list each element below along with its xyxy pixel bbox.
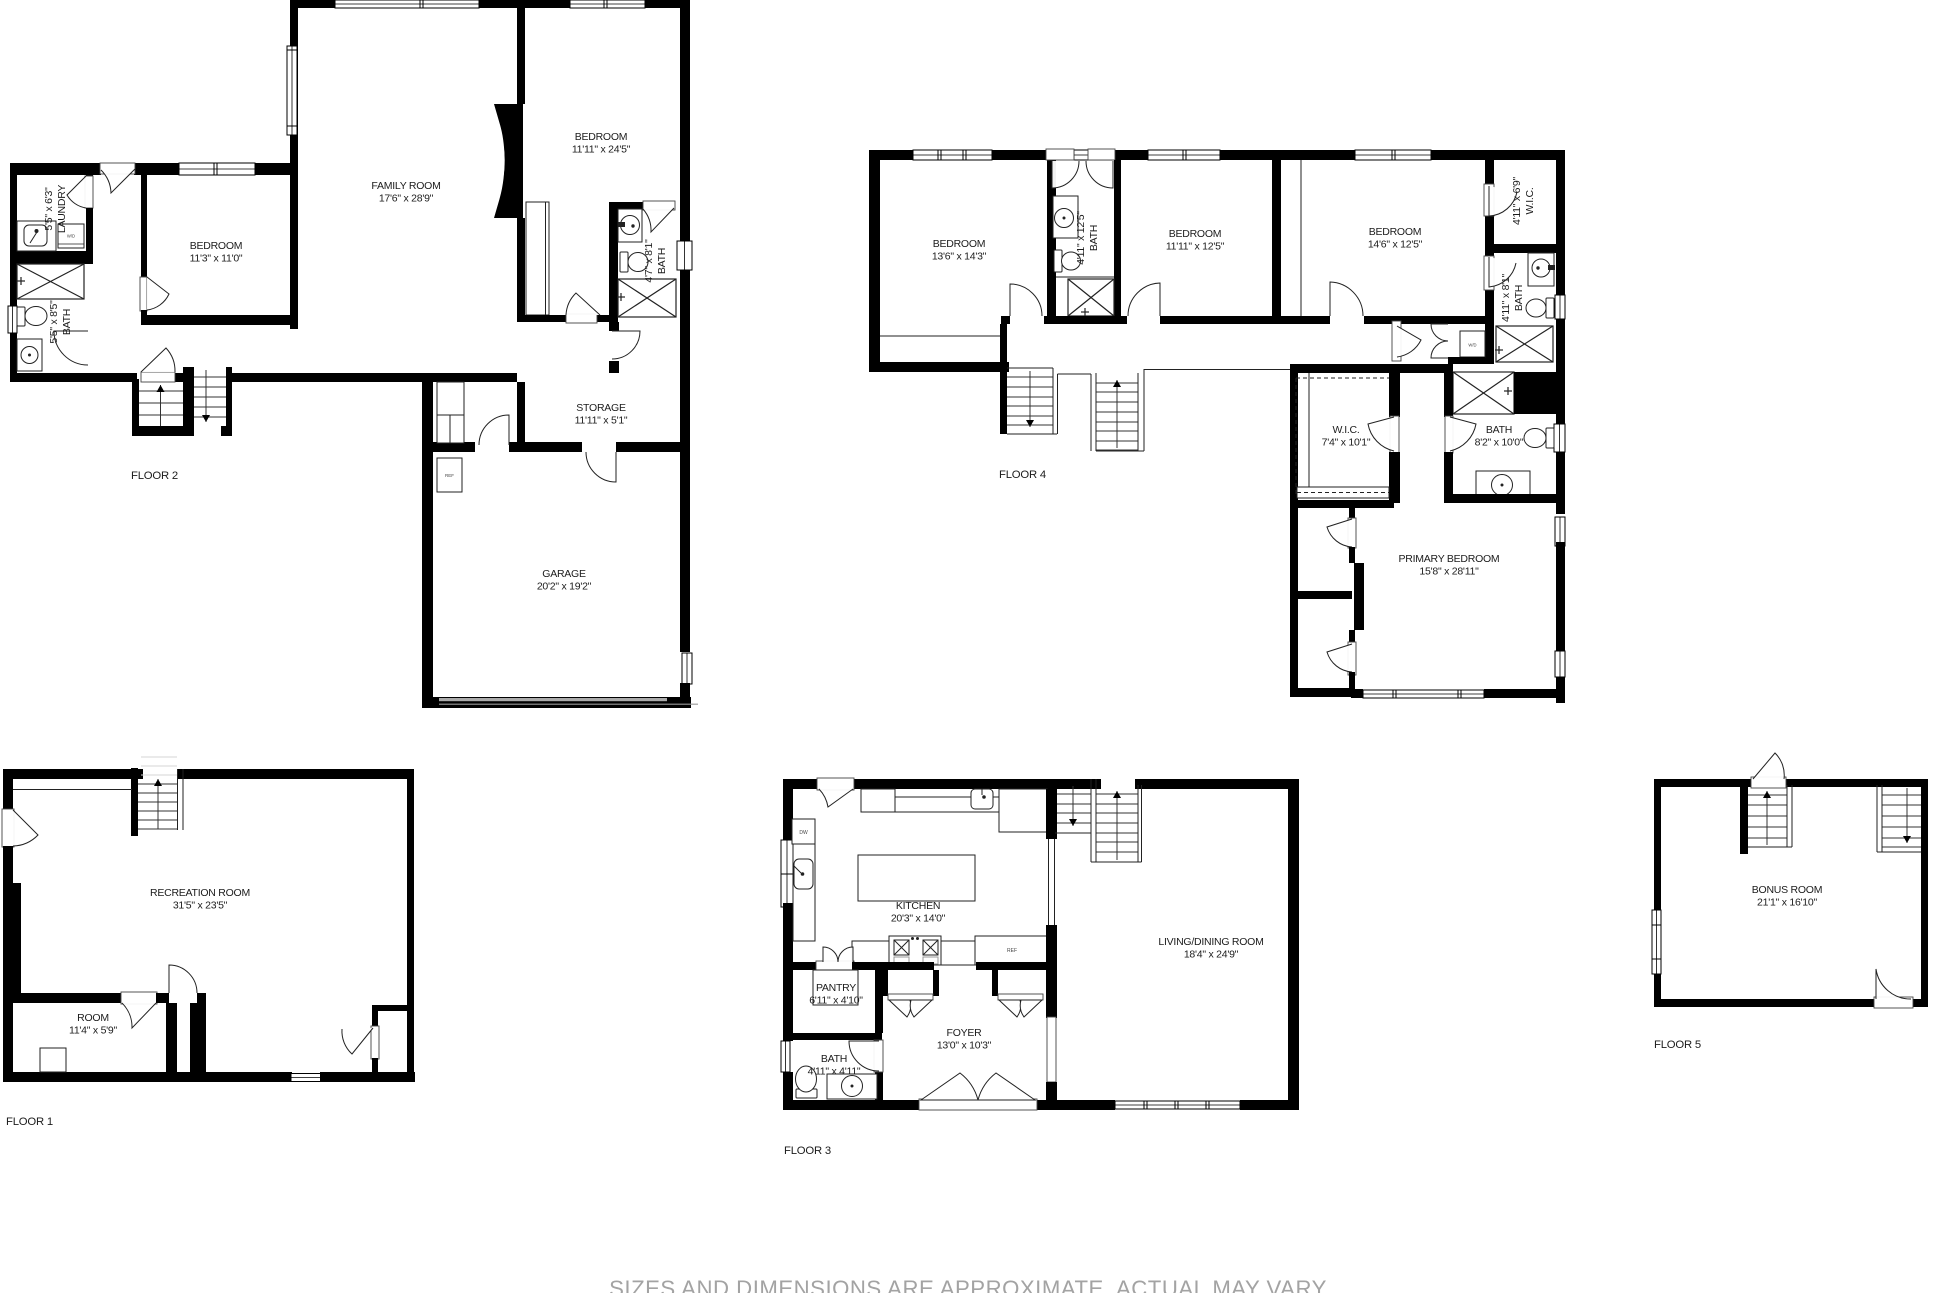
svg-text:BEDROOM: BEDROOM (190, 240, 243, 252)
svg-text:FLOOR 1: FLOOR 1 (6, 1116, 53, 1128)
svg-text:SIZES AND DIMENSIONS ARE APPRO: SIZES AND DIMENSIONS ARE APPROXIMATE, AC… (609, 1276, 1327, 1293)
svg-text:FLOOR 2: FLOOR 2 (131, 470, 178, 482)
svg-text:BEDROOM: BEDROOM (933, 238, 986, 250)
svg-text:5'5" x 6'3": 5'5" x 6'3" (43, 187, 55, 231)
svg-text:FLOOR 4: FLOOR 4 (999, 469, 1046, 481)
svg-text:PRIMARY BEDROOM: PRIMARY BEDROOM (1399, 553, 1500, 565)
svg-text:13'6" x 14'3": 13'6" x 14'3" (932, 251, 987, 263)
svg-text:BEDROOM: BEDROOM (1169, 228, 1222, 240)
svg-text:W/D: W/D (67, 234, 75, 239)
svg-text:DW: DW (799, 830, 808, 836)
svg-text:BATH: BATH (1513, 285, 1525, 311)
svg-text:BATH: BATH (1486, 424, 1512, 436)
svg-text:31'5" x 23'5": 31'5" x 23'5" (173, 900, 228, 912)
svg-text:11'3" x 11'0": 11'3" x 11'0" (190, 253, 243, 265)
svg-text:4'11" x 8'1": 4'11" x 8'1" (1500, 273, 1512, 321)
svg-text:4'7" x 8'1": 4'7" x 8'1" (643, 239, 655, 283)
svg-text:15'8" x 28'11": 15'8" x 28'11" (1419, 566, 1479, 578)
svg-text:W.I.C.: W.I.C. (1524, 187, 1536, 214)
svg-text:11'11" x 12'5": 11'11" x 12'5" (1166, 241, 1225, 253)
svg-text:20'3" x 14'0": 20'3" x 14'0" (891, 913, 946, 925)
svg-text:13'0" x 10'3": 13'0" x 10'3" (937, 1040, 992, 1052)
svg-text:REF: REF (445, 473, 454, 478)
svg-text:FOYER: FOYER (947, 1027, 983, 1039)
svg-text:5'5" x 8'5": 5'5" x 8'5" (48, 300, 60, 344)
svg-text:REF: REF (1007, 948, 1017, 954)
svg-text:11'4" x 5'9": 11'4" x 5'9" (69, 1025, 117, 1037)
svg-text:BATH: BATH (821, 1053, 847, 1065)
svg-text:17'6" x 28'9": 17'6" x 28'9" (379, 193, 434, 205)
svg-text:BONUS ROOM: BONUS ROOM (1752, 884, 1822, 896)
svg-text:W/D: W/D (1468, 343, 1476, 348)
svg-text:LAUNDRY: LAUNDRY (56, 185, 68, 233)
svg-text:RECREATION ROOM: RECREATION ROOM (150, 887, 250, 899)
svg-text:GARAGE: GARAGE (542, 568, 586, 580)
svg-text:BEDROOM: BEDROOM (575, 131, 628, 143)
svg-text:21'1" x 16'10": 21'1" x 16'10" (1757, 897, 1817, 909)
svg-text:BATH: BATH (61, 309, 73, 335)
svg-text:4'11" x 12'5": 4'11" x 12'5" (1075, 211, 1087, 265)
svg-text:4'11" x 6'9": 4'11" x 6'9" (1511, 176, 1523, 224)
svg-text:FAMILY ROOM: FAMILY ROOM (371, 180, 440, 192)
svg-text:4'11" x 4'11": 4'11" x 4'11" (808, 1066, 861, 1078)
svg-text:KITCHEN: KITCHEN (896, 900, 940, 912)
svg-text:ROOM: ROOM (77, 1012, 109, 1024)
svg-text:20'2" x 19'2": 20'2" x 19'2" (537, 581, 592, 593)
svg-text:7'4" x 10'1": 7'4" x 10'1" (1322, 437, 1371, 449)
svg-text:11'11" x 24'5": 11'11" x 24'5" (572, 144, 631, 156)
svg-text:PANTRY: PANTRY (816, 982, 856, 994)
svg-text:BATH: BATH (656, 248, 668, 274)
svg-text:8'2" x 10'0": 8'2" x 10'0" (1475, 437, 1524, 449)
svg-text:FLOOR 5: FLOOR 5 (1654, 1039, 1701, 1051)
svg-text:STORAGE: STORAGE (576, 402, 626, 414)
svg-text:11'11" x 5'1": 11'11" x 5'1" (575, 415, 628, 427)
svg-text:14'6" x 12'5": 14'6" x 12'5" (1368, 239, 1423, 251)
svg-text:LIVING/DINING ROOM: LIVING/DINING ROOM (1158, 936, 1263, 948)
svg-text:6'11" x 4'10": 6'11" x 4'10" (809, 995, 863, 1007)
svg-text:18'4" x 24'9": 18'4" x 24'9" (1184, 949, 1239, 961)
svg-text:W.I.C.: W.I.C. (1332, 424, 1359, 436)
svg-text:FLOOR 3: FLOOR 3 (784, 1145, 831, 1157)
svg-text:BATH: BATH (1088, 225, 1100, 251)
svg-text:BEDROOM: BEDROOM (1369, 226, 1422, 238)
